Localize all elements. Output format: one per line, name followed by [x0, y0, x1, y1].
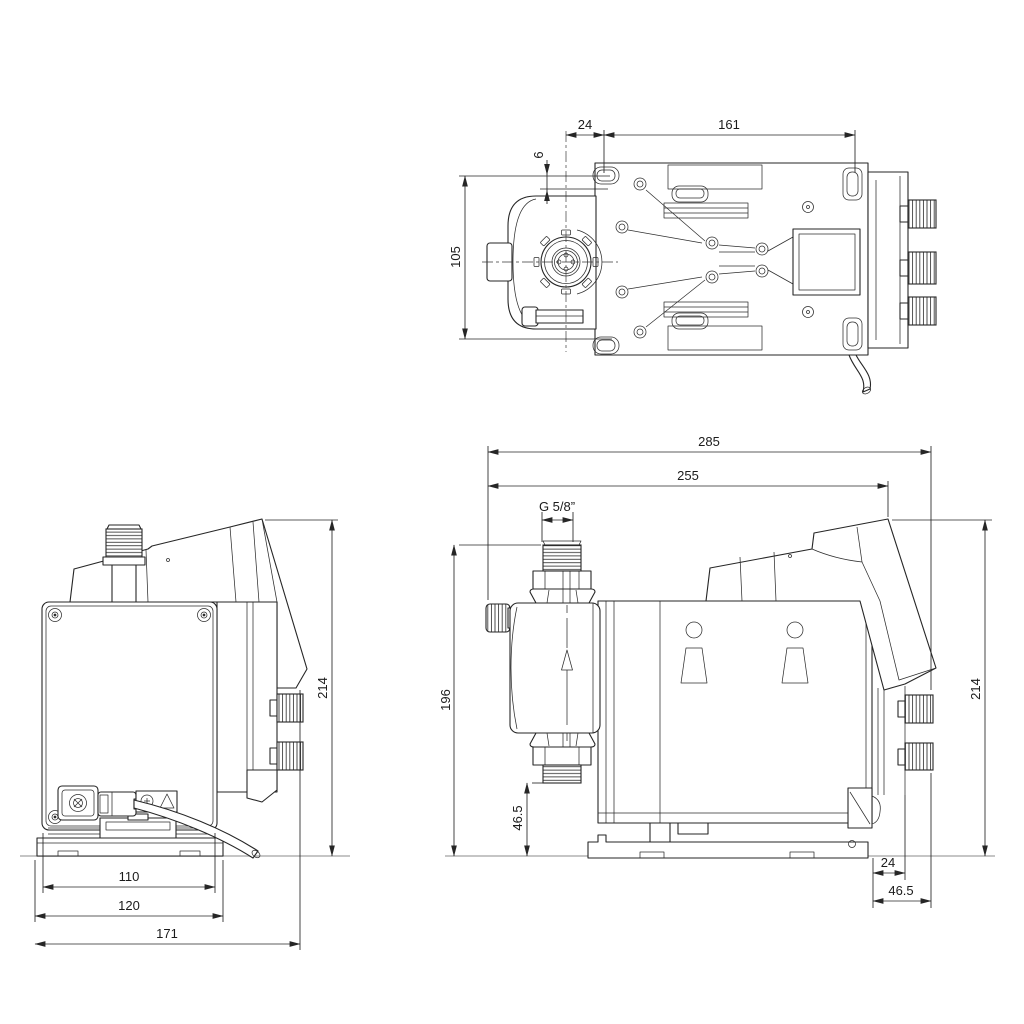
- mounting-flange: [593, 163, 868, 355]
- dim-label-255: 255: [677, 468, 699, 483]
- dosing-head: [486, 541, 600, 783]
- rear-view: 110 120 171 214: [20, 519, 350, 950]
- dim-label-24-side: 24: [881, 855, 895, 870]
- pump-dimensional-drawing: 24 161 6 105: [0, 0, 1024, 1024]
- dim-label-105: 105: [448, 246, 463, 268]
- dim-label-285: 285: [698, 434, 720, 449]
- pump-body-rear: [217, 602, 277, 802]
- discharge-fitting: [543, 545, 581, 571]
- dim-label-46-5-left: 46.5: [510, 805, 525, 830]
- dim-label-214-side: 214: [968, 678, 983, 700]
- side-view: 285 255 G 5/8” 196 46.5 214 24 46.5: [438, 434, 995, 908]
- dim-label-196: 196: [438, 689, 453, 711]
- dim-label-thread: G 5/8”: [539, 499, 575, 514]
- dim-label-46-5-bottom: 46.5: [888, 883, 913, 898]
- connection-knobs-top-view: [900, 200, 936, 325]
- pump-body-side: [598, 601, 872, 823]
- suction-fitting: [543, 765, 581, 783]
- top-view: 24 161 6 105: [448, 117, 936, 395]
- dimensional-drawing-page: 24 161 6 105: [0, 0, 1024, 1024]
- connection-knobs-side: [878, 686, 933, 795]
- dim-label-6: 6: [531, 151, 546, 158]
- dim-label-214-rear: 214: [315, 677, 330, 699]
- dim-label-110: 110: [119, 869, 140, 884]
- dim-label-171: 171: [156, 926, 178, 941]
- dim-label-24-top: 24: [578, 117, 592, 132]
- dim-label-120: 120: [118, 898, 140, 913]
- vent-valve-knob: [486, 604, 510, 632]
- dim-label-161: 161: [718, 117, 740, 132]
- base-assembly-side: [588, 823, 868, 858]
- clamp-detail: [522, 307, 583, 326]
- wall-bracket: [848, 788, 880, 848]
- power-cable-top-view: [849, 355, 872, 395]
- cable-gland: [58, 786, 98, 820]
